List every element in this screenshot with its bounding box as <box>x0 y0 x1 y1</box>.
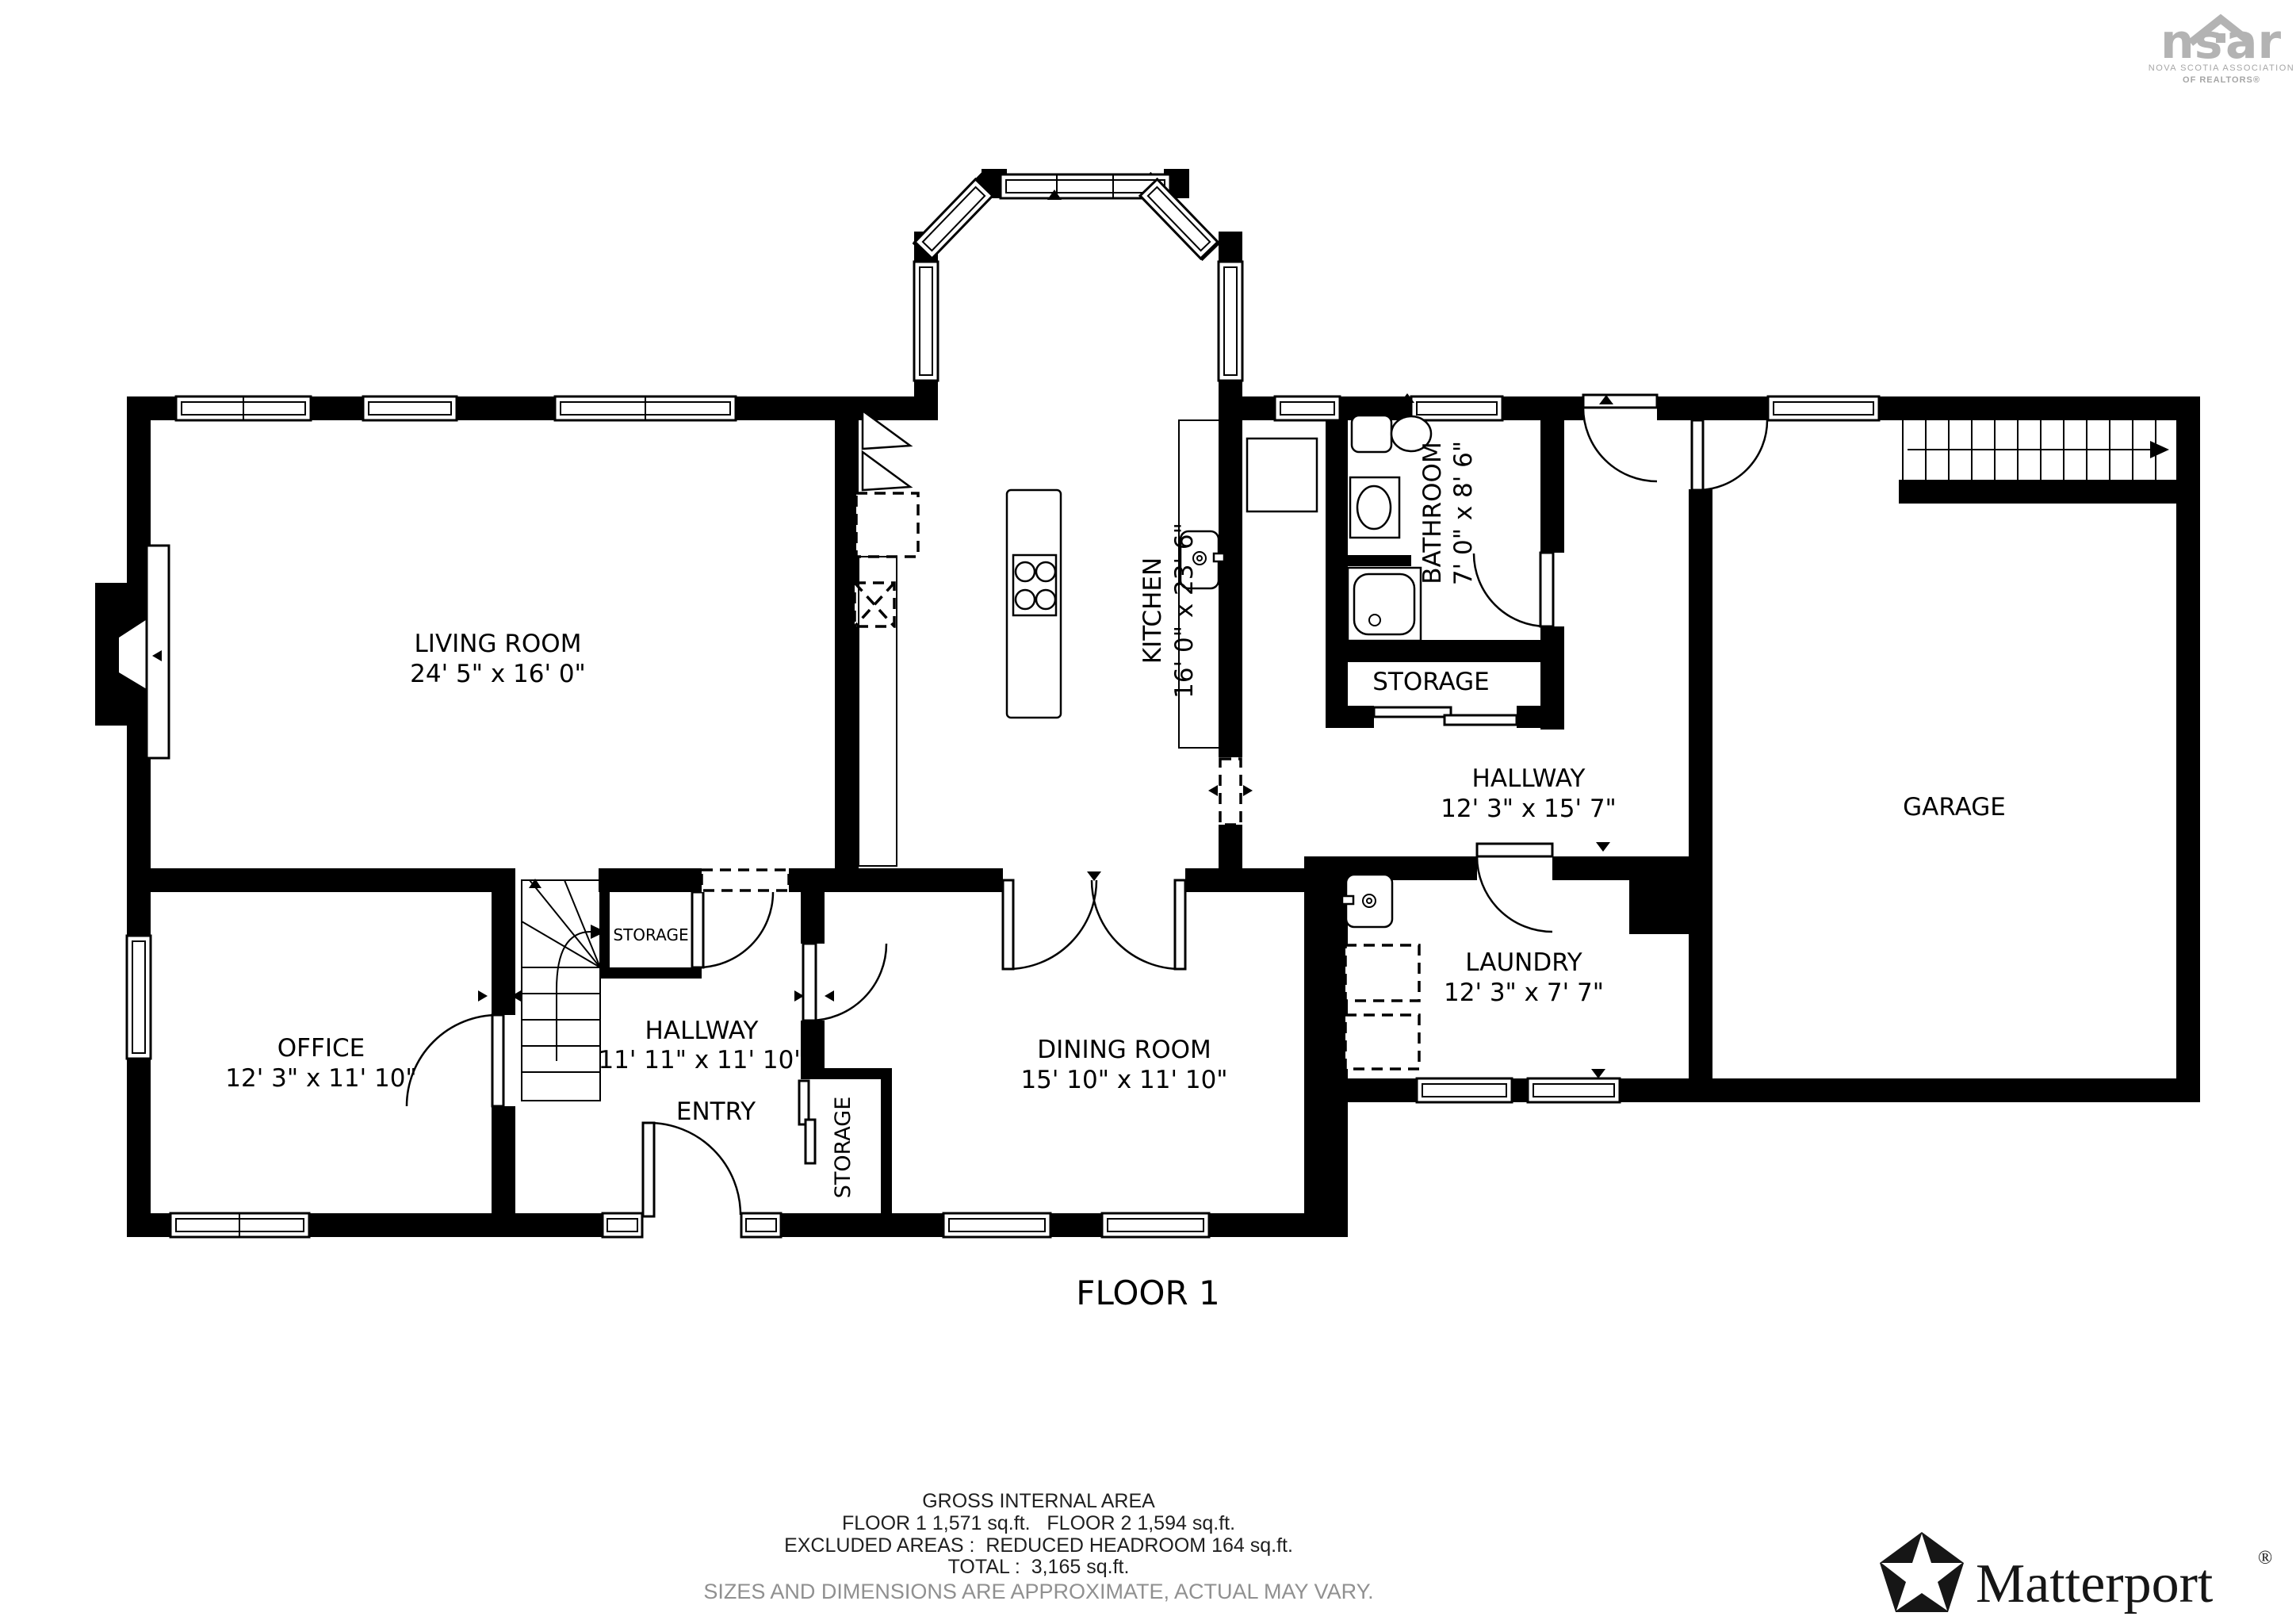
matterport-registered: ® <box>2258 1548 2272 1568</box>
room-label-storage-hall: STORAGE <box>613 925 688 944</box>
svg-text:11' 11" x 11' 10": 11' 11" x 11' 10" <box>598 1046 805 1074</box>
nsar-subtext-1: NOVA SCOTIA ASSOCIATION <box>2149 63 2294 73</box>
svg-text:HALLWAY: HALLWAY <box>1472 764 1586 793</box>
svg-text:BATHROOM: BATHROOM <box>1418 442 1447 584</box>
window <box>1528 1078 1620 1102</box>
svg-text:12' 3" x 7' 7": 12' 3" x 7' 7" <box>1444 979 1604 1007</box>
window <box>1411 396 1502 420</box>
dining-double-door-right <box>1092 880 1185 969</box>
footer-disclaimer: SIZES AND DIMENSIONS ARE APPROXIMATE, AC… <box>703 1580 1373 1603</box>
svg-text:HALLWAY: HALLWAY <box>645 1017 759 1045</box>
room-label-hallway-entry: HALLWAY 11' 11" x 11' 10" <box>598 1017 805 1074</box>
bathroom-door <box>1474 553 1553 626</box>
room-label-bathroom: BATHROOM 7' 0" x 8' 6" <box>1418 441 1478 585</box>
window <box>1417 1078 1512 1102</box>
room-label-storage-entry: STORAGE <box>831 1097 855 1199</box>
room-label-living: LIVING ROOM 24' 5" x 16' 0" <box>410 630 586 688</box>
room-label-entry: ENTRY <box>676 1097 756 1126</box>
stove-icon <box>1013 555 1056 615</box>
window <box>1219 262 1242 381</box>
window <box>363 396 457 420</box>
garage-entry-door <box>1692 420 1767 490</box>
laundry-sink-icon <box>1342 875 1392 927</box>
floor-title: FLOOR 1 <box>1076 1274 1219 1312</box>
footer-floors: FLOOR 1 1,571 sq.ft. FLOOR 2 1,594 sq.ft… <box>842 1512 1235 1534</box>
back-door <box>1583 395 1657 481</box>
svg-text:12' 3" x 11' 10": 12' 3" x 11' 10" <box>225 1064 416 1093</box>
window <box>1768 396 1879 420</box>
room-label-office: OFFICE 12' 3" x 11' 10" <box>225 1034 416 1093</box>
hallway-dining-door <box>803 944 886 1021</box>
floorplan-page: LIVING ROOM 24' 5" x 16' 0" KITCHEN 16' … <box>0 0 2296 1624</box>
washer <box>1345 945 1419 1001</box>
room-label-kitchen: KITCHEN 16' 0" x 23' 6" <box>1138 523 1199 699</box>
footer-total: TOTAL : 3,165 sq.ft. <box>948 1556 1130 1578</box>
window <box>176 396 311 420</box>
entry-door <box>643 1123 740 1216</box>
dryer <box>1345 1015 1419 1069</box>
cased-opening <box>702 870 789 891</box>
svg-text:ENTRY: ENTRY <box>676 1097 756 1126</box>
svg-text:16' 0" x 23' 6": 16' 0" x 23' 6" <box>1170 523 1199 699</box>
appliance-box <box>1247 439 1317 511</box>
nsar-logo: ns ar NOVA SCOTIA ASSOCIATION OF REALTOR… <box>2149 14 2294 85</box>
bathroom-sink-icon <box>1350 477 1399 538</box>
shower-icon <box>1348 568 1421 641</box>
stairs-entry-icon <box>522 880 606 1101</box>
svg-text:12' 3" x 15' 7": 12' 3" x 15' 7" <box>1441 795 1617 823</box>
window <box>170 1213 309 1237</box>
svg-text:DINING ROOM: DINING ROOM <box>1037 1036 1211 1064</box>
cased-opening <box>1220 759 1241 825</box>
window <box>914 262 938 381</box>
bifold-closet-door <box>863 411 910 490</box>
dishwasher <box>855 583 894 626</box>
floorplan-svg: LIVING ROOM 24' 5" x 16' 0" KITCHEN 16' … <box>0 0 2296 1624</box>
refrigerator <box>856 493 918 557</box>
window <box>915 179 993 259</box>
window <box>127 936 151 1059</box>
window <box>1102 1213 1209 1237</box>
footer-gross-area: GROSS INTERNAL AREA <box>922 1490 1155 1512</box>
svg-text:KITCHEN: KITCHEN <box>1138 557 1167 664</box>
nsar-subtext-2: OF REALTORS® <box>2183 75 2260 85</box>
svg-text:LIVING ROOM: LIVING ROOM <box>415 630 582 658</box>
matterport-mark-icon <box>1880 1532 1964 1612</box>
footer-excluded: EXCLUDED AREAS : REDUCED HEADROOM 164 sq… <box>784 1534 1293 1557</box>
stairs-up-icon <box>1903 420 2176 480</box>
footer: GROSS INTERNAL AREA FLOOR 1 1,571 sq.ft.… <box>703 1490 1373 1603</box>
window <box>943 1213 1050 1237</box>
window <box>741 1213 781 1237</box>
svg-text:OFFICE: OFFICE <box>277 1034 365 1063</box>
nsar-letters-right: ar <box>2225 14 2281 70</box>
svg-text:STORAGE: STORAGE <box>831 1097 855 1199</box>
svg-text:7' 0" x 8' 6": 7' 0" x 8' 6" <box>1449 441 1478 585</box>
storage-closet-door <box>692 892 773 967</box>
window <box>1275 396 1340 420</box>
svg-text:24' 5" x 16' 0": 24' 5" x 16' 0" <box>410 660 586 688</box>
office-door <box>407 1015 503 1106</box>
laundry-door <box>1477 844 1552 932</box>
svg-text:GARAGE: GARAGE <box>1903 793 2006 822</box>
svg-text:LAUNDRY: LAUNDRY <box>1465 948 1582 977</box>
dining-double-door-left <box>1003 880 1096 969</box>
room-label-garage: GARAGE <box>1903 793 2006 822</box>
sliding-door-storage-back <box>1374 707 1517 725</box>
room-label-laundry: LAUNDRY 12' 3" x 7' 7" <box>1444 948 1604 1007</box>
matterport-logo: Matterport ® <box>1880 1532 2272 1614</box>
svg-text:15' 10" x 11' 10": 15' 10" x 11' 10" <box>1020 1066 1227 1094</box>
sliding-door-storage-entry <box>799 1081 815 1163</box>
room-label-hallway-back: HALLWAY 12' 3" x 15' 7" <box>1441 764 1617 823</box>
svg-text:STORAGE: STORAGE <box>613 925 688 944</box>
window <box>603 1213 642 1237</box>
room-label-dining: DINING ROOM 15' 10" x 11' 10" <box>1020 1036 1227 1094</box>
window <box>555 396 736 420</box>
svg-text:STORAGE: STORAGE <box>1372 668 1490 696</box>
matterport-wordmark: Matterport <box>1976 1553 2214 1614</box>
room-label-storage-back: STORAGE <box>1372 668 1490 696</box>
